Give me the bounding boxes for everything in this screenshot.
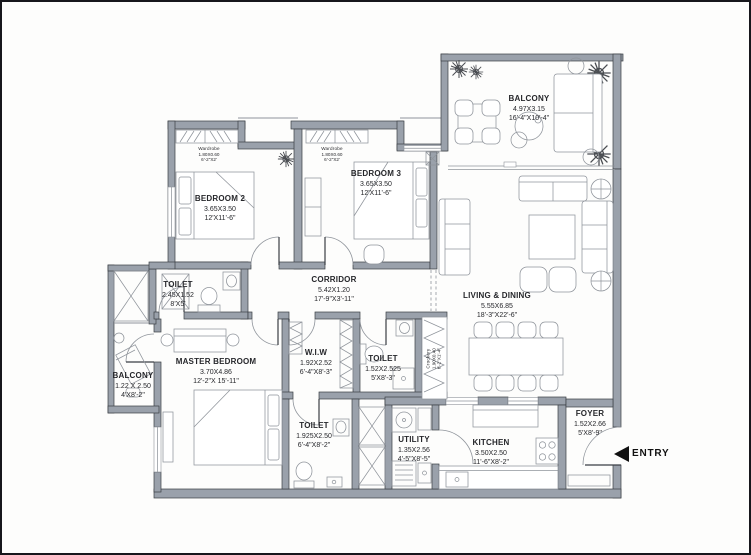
room-label-toilet-common: TOILET 1.925X2.50 6'-4"X8'-2" [276, 421, 352, 450]
room-label-balcony-top: BALCONY 4.97X3.15 16'-4"X10'-4" [469, 94, 589, 123]
living-furniture [439, 176, 613, 292]
foyer-fixtures [568, 475, 610, 486]
room-label-corridor: CORRIDOR 5.42X1.20 17'-9"X3'-11" [272, 275, 396, 304]
room-label-wardrobe2: Wardrobe 1.80X0.60 6'-2"X2' [182, 146, 236, 163]
room-label-bedroom3: BEDROOM 3 3.65X3.50 12'X11'-6" [318, 169, 434, 198]
room-label-living-dining: LIVING & DINING 5.55X6.85 18'-3"X22'-6" [435, 291, 559, 320]
room-label-foyer: FOYER 1.52X2.66 5'X8'-9" [552, 409, 628, 438]
room-label-crockery: Crockery 1.90X0.40 6'-2"X1'-4" [425, 331, 442, 387]
room-label-wiw: W.I.W 1.92X2.52 6'-4"X8'-3" [278, 348, 354, 377]
room-label-kitchen: KITCHEN 3.50X2.50 11'-6"X8'-2" [453, 438, 529, 467]
floor-plan-page: BEDROOM 2 3.65X3.50 12'X11'-6" Wardrobe … [0, 0, 751, 555]
master-bedroom-furniture [161, 329, 282, 465]
room-label-balcony-left: BALCONY 1.22 X 2.50 4'X8'-2" [96, 371, 170, 400]
room-label-bedroom2: BEDROOM 2 3.65X3.50 12'X11'-6" [162, 194, 278, 223]
entry-arrow-icon [614, 446, 629, 462]
entry-label: ENTRY [632, 448, 670, 459]
room-label-utility: UTILITY 1.35X2.56 4'-5"X8'-5" [380, 435, 448, 464]
room-label-wardrobe3: Wardrobe 1.80X0.60 6'-2"X2' [305, 146, 359, 163]
dining-furniture [469, 322, 563, 391]
room-label-toilet-master: TOILET 2.45X1.52 8'X5' [138, 280, 218, 309]
room-label-toilet-mid: TOILET 1.52X2.525 5'X8'-3" [345, 354, 421, 383]
